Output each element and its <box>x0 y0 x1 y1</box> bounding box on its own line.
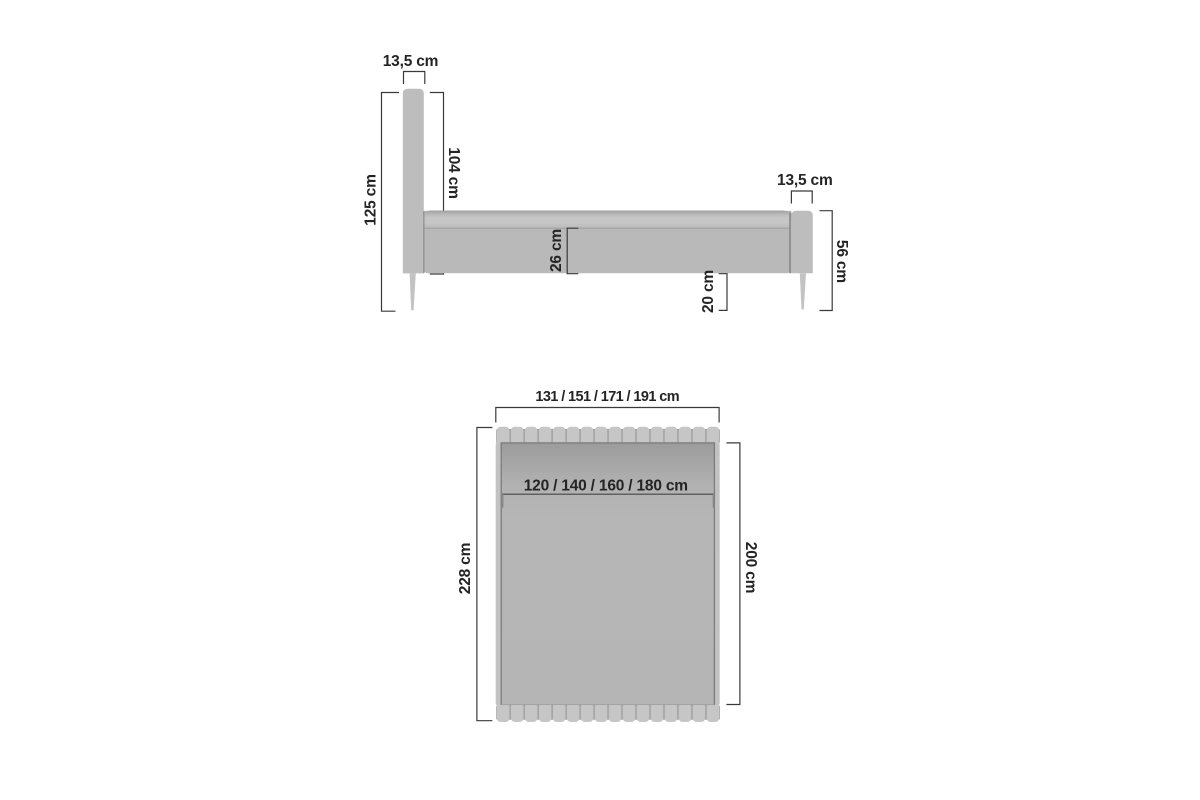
svg-text:125 cm: 125 cm <box>362 174 379 225</box>
svg-text:56 cm: 56 cm <box>833 240 850 283</box>
svg-text:26 cm: 26 cm <box>548 229 565 272</box>
svg-text:13,5 cm: 13,5 cm <box>383 53 438 70</box>
svg-text:120 / 140 / 160 / 180 cm: 120 / 140 / 160 / 180 cm <box>524 478 688 495</box>
svg-text:200 cm: 200 cm <box>742 542 759 593</box>
svg-text:228 cm: 228 cm <box>457 543 474 594</box>
svg-text:20 cm: 20 cm <box>700 270 717 313</box>
svg-text:104 cm: 104 cm <box>445 147 462 198</box>
svg-text:13,5 cm: 13,5 cm <box>777 172 832 189</box>
svg-text:131 / 151 / 171 / 191 cm: 131 / 151 / 171 / 191 cm <box>535 389 679 405</box>
